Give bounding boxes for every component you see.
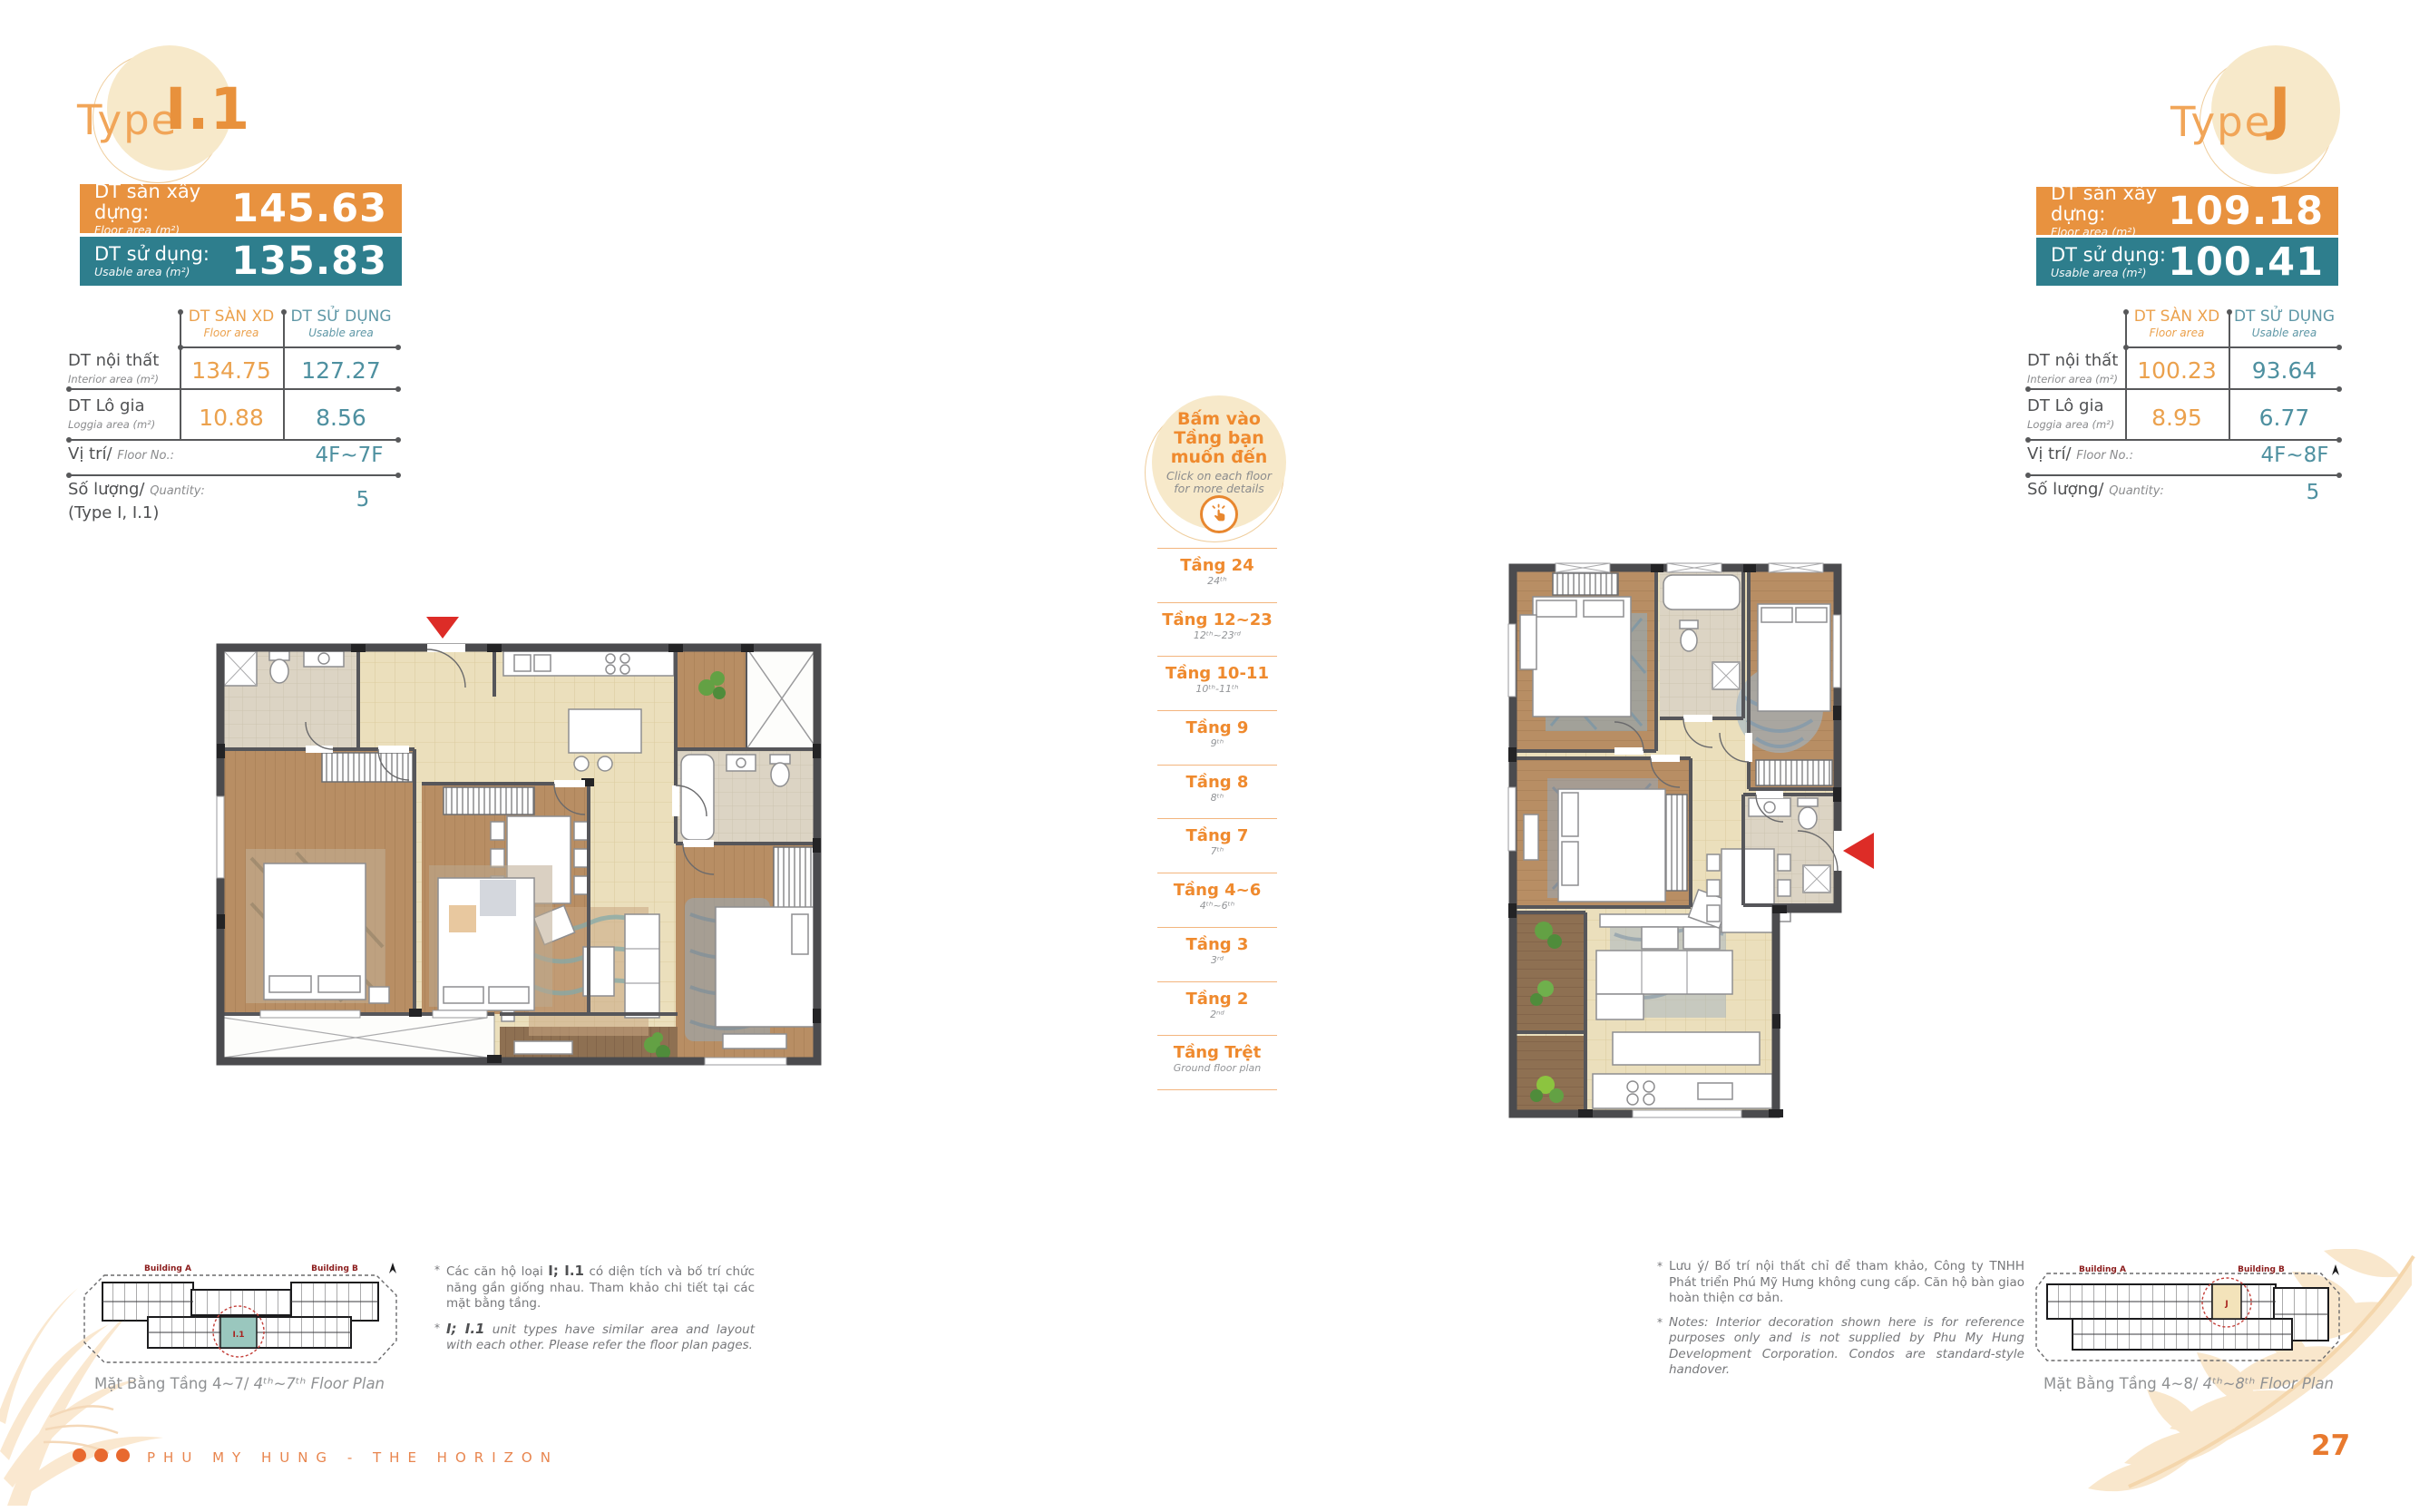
mini-caption-left-vn: Mặt Bằng Tầng 4~7/ bbox=[94, 1375, 254, 1392]
page-number: 27 bbox=[2311, 1429, 2350, 1462]
position-value: 4F~8F bbox=[2249, 444, 2340, 467]
note-en: Notes: Interior decoration shown here is… bbox=[1669, 1315, 2024, 1378]
floor-item-label-en: 12ᵗʰ~23ʳᵈ bbox=[1157, 629, 1277, 641]
type-name-right: J bbox=[2269, 76, 2291, 142]
floor-item-label-vn: Tầng 7 bbox=[1157, 826, 1277, 845]
footer-dot bbox=[73, 1449, 86, 1462]
selector-subtitle-line2: for more details bbox=[1152, 483, 1286, 495]
interior-usable-value: 93.64 bbox=[2229, 357, 2340, 384]
usable-area-value: 135.83 bbox=[231, 239, 387, 284]
quantity-note: (Type I, I.1) bbox=[68, 504, 159, 522]
notes-left: * Các căn hộ loại I; I.1 có diện tích và… bbox=[446, 1263, 755, 1362]
floor-plan-type-j bbox=[1506, 561, 1882, 1123]
spec-table-right: DT SÀN XD Floor area DT SỬ DỤNG Usable a… bbox=[2027, 307, 2340, 515]
bedroom-mid-left bbox=[1524, 778, 1687, 902]
building-b-label: Building B bbox=[311, 1264, 358, 1273]
note-vn-bold: I; I.1 bbox=[548, 1263, 584, 1279]
floor-item-6[interactable]: Tầng 77ᵗʰ bbox=[1157, 819, 1277, 873]
spec-table-left: DT SÀN XD Floor area DT SỬ DỤNG Usable a… bbox=[68, 307, 399, 529]
floor-list: Tầng 2424ᵗʰTầng 12~2312ᵗʰ~23ʳᵈTầng 10-11… bbox=[1157, 548, 1277, 1090]
quantity-value: 5 bbox=[2286, 481, 2340, 504]
loggia-usable-value: 6.77 bbox=[2229, 405, 2340, 431]
floor-item-5[interactable]: Tầng 88ᵗʰ bbox=[1157, 766, 1277, 820]
floor-item-label-vn: Tầng 10-11 bbox=[1157, 664, 1277, 683]
notes-right: * Lưu ý/ Bố trí nội thất chỉ để tham khả… bbox=[1669, 1259, 2024, 1387]
mini-floor-plan-right: J Building A Building B bbox=[2034, 1263, 2343, 1373]
row-interior-label-en: Interior area (m²) bbox=[2027, 370, 2123, 388]
usable-area-label-en: Usable area (m²) bbox=[2051, 266, 2166, 279]
floor-item-label-vn: Tầng 12~23 bbox=[1157, 610, 1277, 629]
usable-area-value: 100.41 bbox=[2168, 239, 2324, 285]
note-vn-pre: Các căn hộ loại bbox=[446, 1264, 548, 1279]
bullet: * bbox=[1657, 1260, 1663, 1274]
interior-floor-value: 100.23 bbox=[2125, 357, 2229, 384]
loggia-bench bbox=[514, 1041, 572, 1054]
usable-area-banner-left: DT sử dụng: Usable area (m²) 135.83 bbox=[80, 237, 402, 286]
row-loggia-label-vn: DT Lô gia bbox=[68, 396, 144, 415]
selector-title-line1: Bấm vào bbox=[1152, 410, 1286, 429]
row-interior-label-en: Interior area (m²) bbox=[68, 370, 177, 388]
floor-item-label-vn: Tầng 2 bbox=[1157, 990, 1277, 1009]
floor-item-label-vn: Tầng Trệt bbox=[1157, 1043, 1277, 1062]
brochure-page: { "header_left": {"type_label": "Type", … bbox=[0, 0, 2419, 1512]
floor-plan-type-i1 bbox=[215, 617, 823, 1070]
quantity-label-en: Quantity: bbox=[150, 484, 205, 498]
row-interior-label-vn: DT nội thất bbox=[68, 351, 159, 370]
floor-item-1[interactable]: Tầng 2424ᵗʰ bbox=[1157, 549, 1277, 603]
position-label-vn: Vị trí/ bbox=[2027, 444, 2072, 463]
floor-area-label-vn: DT sàn xây dựng: bbox=[2051, 183, 2168, 225]
usable-area-label-en: Usable area (m²) bbox=[94, 265, 210, 278]
footer-dot bbox=[116, 1449, 130, 1462]
click-hand-icon bbox=[1200, 495, 1238, 533]
interior-floor-value: 134.75 bbox=[180, 357, 283, 384]
floor-item-label-vn: Tầng 8 bbox=[1157, 773, 1277, 792]
floor-item-label-en: 2ⁿᵈ bbox=[1157, 1009, 1277, 1020]
row-loggia-label-en: Loggia area (m²) bbox=[68, 415, 177, 434]
floor-item-label-en: 8ᵗʰ bbox=[1157, 792, 1277, 804]
bullet: * bbox=[1657, 1316, 1663, 1331]
floor-area-value: 109.18 bbox=[2168, 189, 2324, 234]
mini-caption-right-vn: Mặt Bằng Tầng 4~8/ bbox=[2043, 1375, 2203, 1392]
floor-item-10[interactable]: Tầng TrệtGround floor plan bbox=[1157, 1036, 1277, 1090]
mini-caption-right-en: 4ᵗʰ~8ᵗʰ Floor Plan bbox=[2203, 1375, 2334, 1392]
col-usable-header-en: Usable area bbox=[283, 325, 399, 341]
note-en-post: unit types have similar area and layout … bbox=[446, 1322, 755, 1353]
north-icon bbox=[2332, 1264, 2339, 1275]
floor-item-label-en: 9ᵗʰ bbox=[1157, 737, 1277, 749]
floor-item-8[interactable]: Tầng 33ʳᵈ bbox=[1157, 928, 1277, 982]
selector-subtitle-line1: Click on each floor bbox=[1152, 470, 1286, 483]
floor-item-label-vn: Tầng 4~6 bbox=[1157, 881, 1277, 900]
floor-area-value: 145.63 bbox=[231, 186, 387, 231]
floor-item-label-vn: Tầng 9 bbox=[1157, 718, 1277, 737]
loggia-floor-value: 8.95 bbox=[2125, 405, 2229, 431]
footer-dot bbox=[94, 1449, 108, 1462]
floor-area-label-vn: DT sàn xây dựng: bbox=[94, 181, 231, 223]
quantity-label-vn: Số lượng/ bbox=[2027, 480, 2103, 499]
interior-usable-value: 127.27 bbox=[283, 357, 399, 384]
col-usable-header-vn: DT SỬ DỤNG bbox=[2234, 307, 2335, 326]
row-loggia-label-en: Loggia area (m²) bbox=[2027, 415, 2123, 434]
floor-item-label-en: 10ᵗʰ-11ᵗʰ bbox=[1157, 683, 1277, 695]
building-b-label: Building B bbox=[2238, 1265, 2285, 1274]
type-label-right: Type bbox=[2170, 98, 2271, 146]
floor-area-label-en: Floor area (m²) bbox=[2051, 225, 2168, 239]
loggia-usable-value: 8.56 bbox=[283, 405, 399, 431]
mini-floor-plan-left: I.1 Building A Building B bbox=[77, 1261, 402, 1375]
usable-area-label-vn: DT sử dụng: bbox=[2051, 245, 2166, 266]
floor-item-3[interactable]: Tầng 10-1110ᵗʰ-11ᵗʰ bbox=[1157, 657, 1277, 711]
floor-area-banner-left: DT sàn xây dựng: Floor area (m²) 145.63 bbox=[80, 184, 402, 233]
row-loggia-label-vn: DT Lô gia bbox=[2027, 396, 2103, 415]
position-label-vn: Vị trí/ bbox=[68, 444, 112, 463]
floor-item-label-en: Ground floor plan bbox=[1157, 1062, 1277, 1074]
loggia-floor-value: 10.88 bbox=[180, 405, 283, 431]
bullet: * bbox=[434, 1322, 440, 1336]
type-label-left: Type bbox=[77, 96, 178, 144]
floor-item-label-en: 7ᵗʰ bbox=[1157, 845, 1277, 857]
bedroom-top-left bbox=[1520, 573, 1647, 731]
mini-caption-left-en: 4ᵗʰ~7ᵗʰ Floor Plan bbox=[254, 1375, 385, 1392]
col-floor-header-en: Floor area bbox=[2125, 325, 2229, 341]
col-floor-header-vn: DT SÀN XD bbox=[2134, 307, 2219, 326]
footer-dots bbox=[73, 1449, 130, 1462]
bullet: * bbox=[434, 1263, 440, 1278]
floor-item-7[interactable]: Tầng 4~64ᵗʰ~6ᵗʰ bbox=[1157, 873, 1277, 928]
building-a-label: Building A bbox=[144, 1264, 191, 1273]
position-label-en: Floor No.: bbox=[2076, 449, 2133, 463]
footer-brand: PHU MY HUNG - THE HORIZON bbox=[147, 1449, 559, 1466]
mini-unit-tag-right: J bbox=[2224, 1300, 2228, 1309]
usable-area-label-vn: DT sử dụng: bbox=[94, 244, 210, 265]
quantity-value: 5 bbox=[336, 488, 390, 512]
note-en-bold: I; I.1 bbox=[446, 1321, 485, 1337]
usable-area-banner-right: DT sử dụng: Usable area (m²) 100.41 bbox=[2036, 238, 2338, 286]
closet-niches bbox=[1556, 563, 1823, 572]
selector-title-line3: muốn đến bbox=[1152, 448, 1286, 467]
floor-item-label-en: 4ᵗʰ~6ᵗʰ bbox=[1157, 900, 1277, 912]
quantity-label-vn: Số lượng/ bbox=[68, 480, 144, 499]
north-icon bbox=[389, 1263, 396, 1273]
col-floor-header-en: Floor area bbox=[180, 325, 283, 341]
entrance-marker-left-plan bbox=[426, 617, 459, 639]
note-vn: Lưu ý/ Bố trí nội thất chỉ để tham khảo,… bbox=[1669, 1259, 2024, 1305]
col-usable-header-vn: DT SỬ DỤNG bbox=[290, 307, 391, 326]
col-floor-header-vn: DT SÀN XD bbox=[189, 307, 274, 326]
position-value: 4F~7F bbox=[295, 444, 404, 467]
floor-area-banner-right: DT sàn xây dựng: Floor area (m²) 109.18 bbox=[2036, 187, 2338, 235]
type-name-left: I.1 bbox=[165, 76, 250, 142]
floor-item-9[interactable]: Tầng 22ⁿᵈ bbox=[1157, 982, 1277, 1037]
floor-item-4[interactable]: Tầng 99ᵗʰ bbox=[1157, 711, 1277, 766]
floor-item-2[interactable]: Tầng 12~2312ᵗʰ~23ʳᵈ bbox=[1157, 603, 1277, 658]
floor-item-label-en: 3ʳᵈ bbox=[1157, 954, 1277, 966]
floor-item-label-vn: Tầng 3 bbox=[1157, 935, 1277, 954]
floor-area-label-en: Floor area (m²) bbox=[94, 223, 231, 237]
selector-title-line2: Tầng bạn bbox=[1152, 429, 1286, 448]
quantity-label-en: Quantity: bbox=[2109, 484, 2164, 498]
mini-unit-tag-left: I.1 bbox=[232, 1331, 244, 1340]
floor-item-label-vn: Tầng 24 bbox=[1157, 556, 1277, 575]
entrance-marker-right-plan bbox=[1843, 833, 1874, 869]
col-usable-header-en: Usable area bbox=[2229, 325, 2340, 341]
floor-item-label-en: 24ᵗʰ bbox=[1157, 575, 1277, 587]
position-label-en: Floor No.: bbox=[117, 449, 174, 463]
row-interior-label-vn: DT nội thất bbox=[2027, 351, 2118, 370]
building-a-label: Building A bbox=[2079, 1265, 2126, 1274]
